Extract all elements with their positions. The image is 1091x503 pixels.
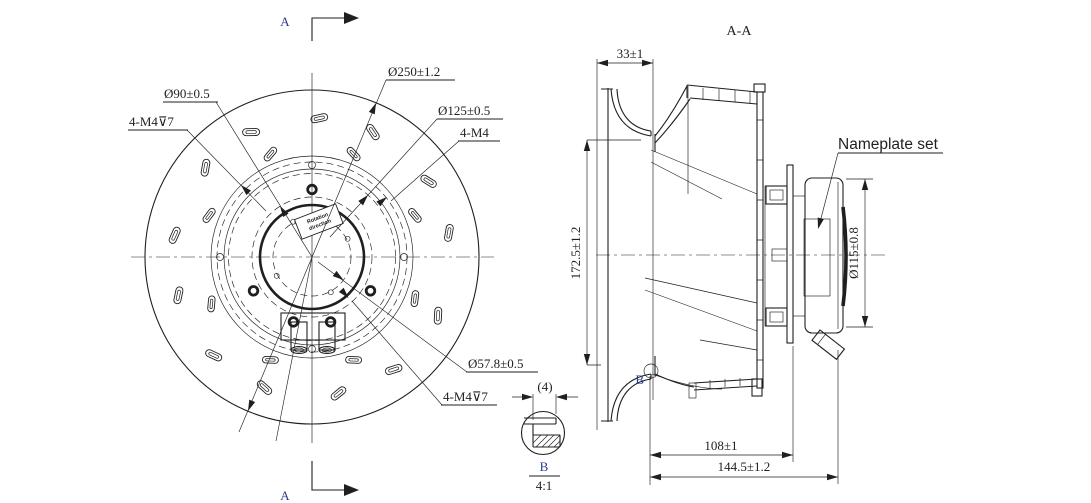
impeller: [645, 84, 765, 398]
dim-1725-label: 172.5±1.2: [568, 227, 583, 280]
dimension-arrowheads: [239, 60, 868, 480]
front-view-dimensions: Ø90±0.5 4-M4⊽7 Ø250±1.2 Ø125±0.5 4-M4 Ø5…: [128, 64, 538, 405]
detail-dim-label: (4): [537, 379, 552, 394]
motor-body: [805, 178, 843, 333]
dim-d250-label: Ø250±1.2: [388, 64, 440, 79]
detail-letter: B: [540, 459, 549, 474]
section-dimension-lines: [587, 63, 865, 477]
engineering-drawing: Rotation direction A A Ø90±0.5: [0, 0, 1091, 503]
detail-scale: 4:1: [536, 478, 553, 493]
dim-d90-label: Ø90±0.5: [164, 86, 210, 101]
hatching: [533, 435, 560, 447]
dim-108-label: 108±1: [704, 438, 737, 453]
detail-callout-letter: B: [635, 372, 644, 387]
dim-m4-depth-bottom-label: 4-M4⊽7: [443, 389, 488, 404]
section-letter-bottom: A: [280, 488, 290, 503]
dim-1445-label: 144.5±1.2: [718, 459, 771, 474]
dim-m4-depth-top-label: 4-M4⊽7: [129, 114, 174, 129]
section-letter-top: A: [280, 14, 290, 29]
motor-mounting-plate: [787, 165, 793, 343]
section-arrow-icon: [344, 484, 359, 496]
section-arrow-icon: [344, 12, 359, 24]
dim-d578-label: Ø57.8±0.5: [468, 356, 524, 371]
front-view: Rotation direction A A Ø90±0.5: [128, 12, 538, 503]
section-view-title: A-A: [727, 24, 753, 39]
section-view: A-A: [568, 24, 943, 485]
motor-assembly: [765, 165, 846, 359]
dim-d125-label: Ø125±0.5: [438, 103, 490, 118]
impeller-blades: [645, 86, 757, 389]
motor-cable-gland: [812, 330, 844, 359]
dim-m4-label: 4-M4: [460, 125, 489, 140]
section-cut-marker-top: A: [280, 12, 359, 41]
dim-33-label: 33±1: [617, 46, 644, 61]
nameplate-label: Nameplate set: [838, 136, 939, 153]
dim-115-label: Ø115±0.8: [846, 227, 861, 279]
section-cut-marker-bottom: A: [280, 461, 359, 503]
drawing-sheet: Rotation direction A A Ø90±0.5: [0, 0, 1091, 503]
nameplate: [804, 219, 830, 296]
detail-view: (4) B 4:1: [512, 379, 578, 493]
rotation-label-plate: Rotation direction: [295, 204, 344, 239]
